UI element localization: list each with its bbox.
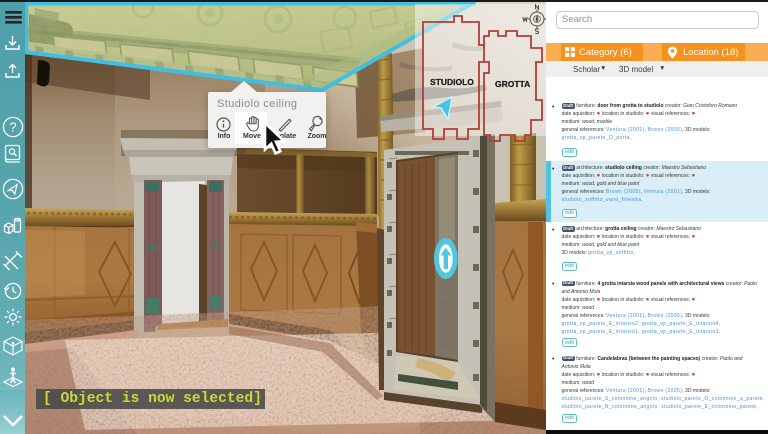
svg-text:GROTTA: GROTTA xyxy=(495,79,530,89)
svg-text:?: ? xyxy=(9,120,16,135)
svg-text:STUDIOLO: STUDIOLO xyxy=(430,77,474,87)
